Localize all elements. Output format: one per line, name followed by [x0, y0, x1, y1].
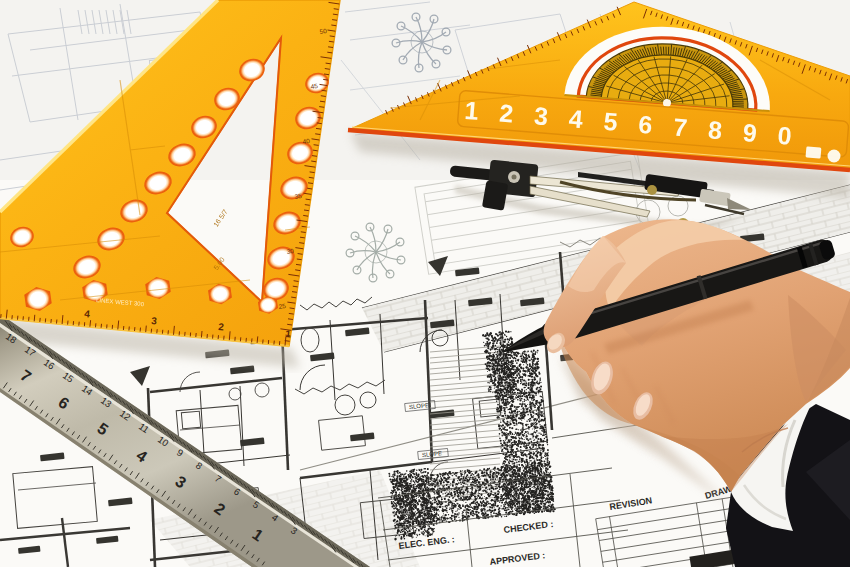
svg-text:50: 50: [319, 27, 328, 35]
svg-text:25: 25: [278, 302, 287, 310]
svg-text:35: 35: [294, 192, 303, 200]
svg-text:45: 45: [310, 82, 319, 90]
svg-text:40: 40: [302, 137, 311, 145]
svg-text:30: 30: [286, 247, 295, 255]
